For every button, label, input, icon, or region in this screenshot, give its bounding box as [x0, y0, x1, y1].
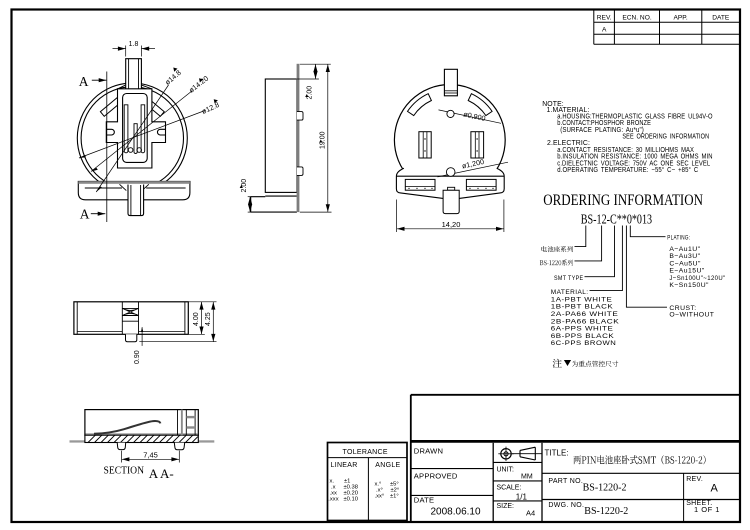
svg-text:ANGLE: ANGLE — [375, 462, 400, 469]
svg-text:B−Au3U": B−Au3U" — [669, 253, 700, 260]
svg-text:A A-: A A- — [149, 466, 174, 481]
svg-text:C−Au5U": C−Au5U" — [669, 260, 701, 267]
svg-text:±1°: ±1° — [390, 493, 399, 499]
svg-text:1A-PBT WHITE: 1A-PBT WHITE — [551, 296, 613, 303]
svg-text:6C-PPS BROWN: 6C-PPS BROWN — [551, 340, 617, 347]
svg-text:O−WITHOUT: O−WITHOUT — [669, 312, 714, 319]
svg-text:4.00: 4.00 — [193, 312, 200, 326]
svg-text:MATERIAL:: MATERIAL: — [551, 289, 589, 296]
svg-text:A: A — [79, 74, 89, 89]
svg-text:7,45: 7,45 — [143, 451, 158, 460]
svg-text:2A-PA66 WHITE: 2A-PA66 WHITE — [551, 311, 619, 318]
svg-text:2.00: 2.00 — [307, 86, 314, 100]
svg-text:b.CONTACT:PHOSPHOR BRONZE: b.CONTACT:PHOSPHOR BRONZE — [557, 120, 651, 127]
svg-text:PART NO.: PART NO. — [548, 478, 583, 485]
svg-text:A4: A4 — [526, 508, 535, 517]
svg-text:BS-12-C**0*013: BS-12-C**0*013 — [581, 212, 652, 227]
svg-text:DATE: DATE — [712, 14, 730, 21]
svg-text:ECN. NO.: ECN. NO. — [622, 14, 651, 21]
svg-text:2B-PA66 BLACK: 2B-PA66 BLACK — [551, 318, 620, 325]
svg-text:A: A — [711, 482, 719, 494]
svg-text:K−Sn150U": K−Sn150U" — [669, 282, 709, 289]
svg-text:TOLERANCE: TOLERANCE — [343, 449, 388, 456]
svg-text:SMT TYPE: SMT TYPE — [554, 275, 584, 282]
svg-text:BS-1220-2: BS-1220-2 — [584, 506, 628, 517]
svg-text:±0.10: ±0.10 — [344, 496, 358, 502]
svg-text:0.90: 0.90 — [134, 350, 141, 364]
svg-text:.xx°: .xx° — [375, 493, 385, 499]
svg-text:1B-PBT BLACK: 1B-PBT BLACK — [551, 304, 614, 311]
svg-text:LINEAR: LINEAR — [331, 462, 358, 469]
svg-text:ORDERING INFORMATION: ORDERING INFORMATION — [543, 192, 703, 209]
svg-text:SEE ORDERING INFORMATION: SEE ORDERING INFORMATION — [622, 134, 709, 141]
svg-text:E−Au15U": E−Au15U" — [669, 268, 704, 275]
svg-text:.xxx: .xxx — [328, 496, 338, 502]
svg-text:6A-PPS WHITE: 6A-PPS WHITE — [551, 326, 614, 333]
svg-text:19.00: 19.00 — [319, 131, 326, 149]
svg-text:PLATING:: PLATING: — [667, 234, 690, 241]
svg-text:4.25: 4.25 — [205, 312, 212, 326]
svg-text:REV.: REV. — [686, 476, 703, 483]
svg-text:ø14.8: ø14.8 — [163, 68, 183, 87]
svg-text:6B-PPS BLACK: 6B-PPS BLACK — [551, 333, 615, 340]
svg-text:APPROVED: APPROVED — [414, 471, 458, 480]
svg-text:DWG. NO.: DWG. NO. — [548, 502, 584, 509]
svg-text:SIZE:: SIZE: — [497, 503, 515, 510]
svg-text:BS-1220-2: BS-1220-2 — [583, 483, 627, 494]
svg-text:DRAWN: DRAWN — [414, 446, 443, 455]
svg-text:A−Au1U": A−Au1U" — [669, 246, 700, 253]
svg-text:APP.: APP. — [674, 14, 688, 21]
svg-text:1 OF 1: 1 OF 1 — [694, 505, 720, 514]
svg-text:ø12.8: ø12.8 — [200, 100, 220, 116]
svg-text:DATE: DATE — [414, 495, 435, 504]
svg-text:1/1: 1/1 — [516, 492, 528, 501]
svg-text:A: A — [602, 26, 607, 33]
svg-text:SCALE:: SCALE: — [497, 485, 522, 492]
svg-text:REV.: REV. — [597, 14, 612, 21]
svg-text:MM: MM — [521, 474, 533, 481]
svg-text:TITLE:: TITLE: — [545, 448, 569, 457]
svg-text:1.8: 1.8 — [129, 41, 139, 48]
svg-text:d.OPERATING TEMPERATURE: −55°: d.OPERATING TEMPERATURE: −55° C~ +85° C — [557, 166, 698, 174]
svg-text:ø14.20: ø14.20 — [187, 74, 210, 95]
svg-text:J−Sn100U"~120U": J−Sn100U"~120U" — [669, 275, 725, 282]
svg-text:2008.06.10: 2008.06.10 — [431, 507, 481, 518]
svg-text:UNIT:: UNIT: — [497, 467, 515, 474]
svg-text:2.00: 2.00 — [241, 179, 248, 193]
svg-text:A: A — [80, 206, 90, 221]
svg-text:SECTION: SECTION — [104, 465, 145, 477]
svg-text:14,20: 14,20 — [442, 220, 461, 229]
